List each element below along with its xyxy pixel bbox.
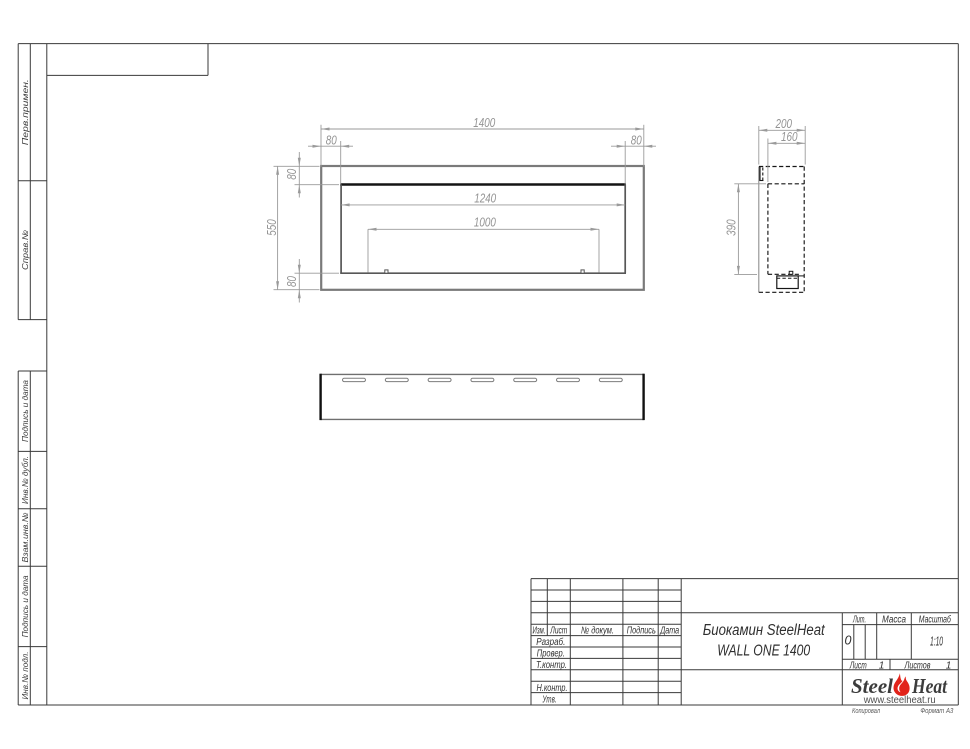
- svg-text:Биокамин SteelHeat: Биокамин SteelHeat: [703, 622, 826, 639]
- svg-text:Масштаб: Масштаб: [919, 613, 951, 625]
- svg-text:Лист: Лист: [550, 625, 568, 636]
- svg-text:Перв.примен.: Перв.примен.: [20, 79, 30, 145]
- svg-text:Лист: Лист: [849, 660, 867, 671]
- svg-text:Подпись: Подпись: [627, 625, 656, 636]
- svg-text:WALL ONE 1400: WALL ONE 1400: [717, 643, 810, 660]
- svg-text:80: 80: [284, 276, 299, 287]
- svg-text:Инв.№ подл.: Инв.№ подл.: [20, 652, 30, 700]
- svg-text:Справ.№: Справ.№: [20, 230, 30, 270]
- svg-text:Подпись и дата: Подпись и дата: [20, 380, 30, 442]
- svg-text:Взам.инв.№: Взам.инв.№: [20, 513, 30, 563]
- svg-text:550: 550: [264, 219, 279, 236]
- svg-text:Формат А3: Формат А3: [920, 706, 954, 715]
- svg-text:Разраб.: Разраб.: [536, 636, 565, 648]
- svg-text:80: 80: [284, 168, 299, 179]
- svg-text:Копировал: Копировал: [852, 706, 881, 715]
- svg-text:1240: 1240: [474, 191, 496, 206]
- svg-text:Подпись и дата: Подпись и дата: [20, 575, 30, 637]
- svg-text:Масса: Масса: [882, 614, 906, 625]
- svg-text:Листов: Листов: [904, 660, 931, 671]
- svg-text:80: 80: [326, 132, 337, 147]
- svg-text:1000: 1000: [474, 215, 496, 230]
- svg-text:390: 390: [724, 219, 739, 236]
- svg-text:1:10: 1:10: [930, 635, 943, 649]
- svg-text:Лит.: Лит.: [852, 614, 866, 625]
- svg-text:Дата: Дата: [659, 625, 679, 636]
- svg-text:1400: 1400: [473, 115, 495, 130]
- svg-text:Изм.: Изм.: [533, 625, 546, 636]
- svg-text:80: 80: [631, 132, 642, 147]
- svg-text:1: 1: [946, 660, 952, 671]
- svg-text:0: 0: [845, 634, 852, 648]
- svg-text:160: 160: [781, 129, 798, 144]
- svg-text:Инв.№ дубл.: Инв.№ дубл.: [20, 456, 30, 504]
- svg-text:Т.контр.: Т.контр.: [536, 660, 567, 671]
- svg-text:Провер.: Провер.: [537, 649, 565, 660]
- svg-text:1: 1: [879, 660, 885, 671]
- svg-text:Н.контр.: Н.контр.: [537, 683, 568, 694]
- svg-text:№ докум.: № докум.: [581, 625, 614, 636]
- svg-text:www.steelheat.ru: www.steelheat.ru: [863, 695, 936, 706]
- svg-text:Утв.: Утв.: [542, 694, 557, 705]
